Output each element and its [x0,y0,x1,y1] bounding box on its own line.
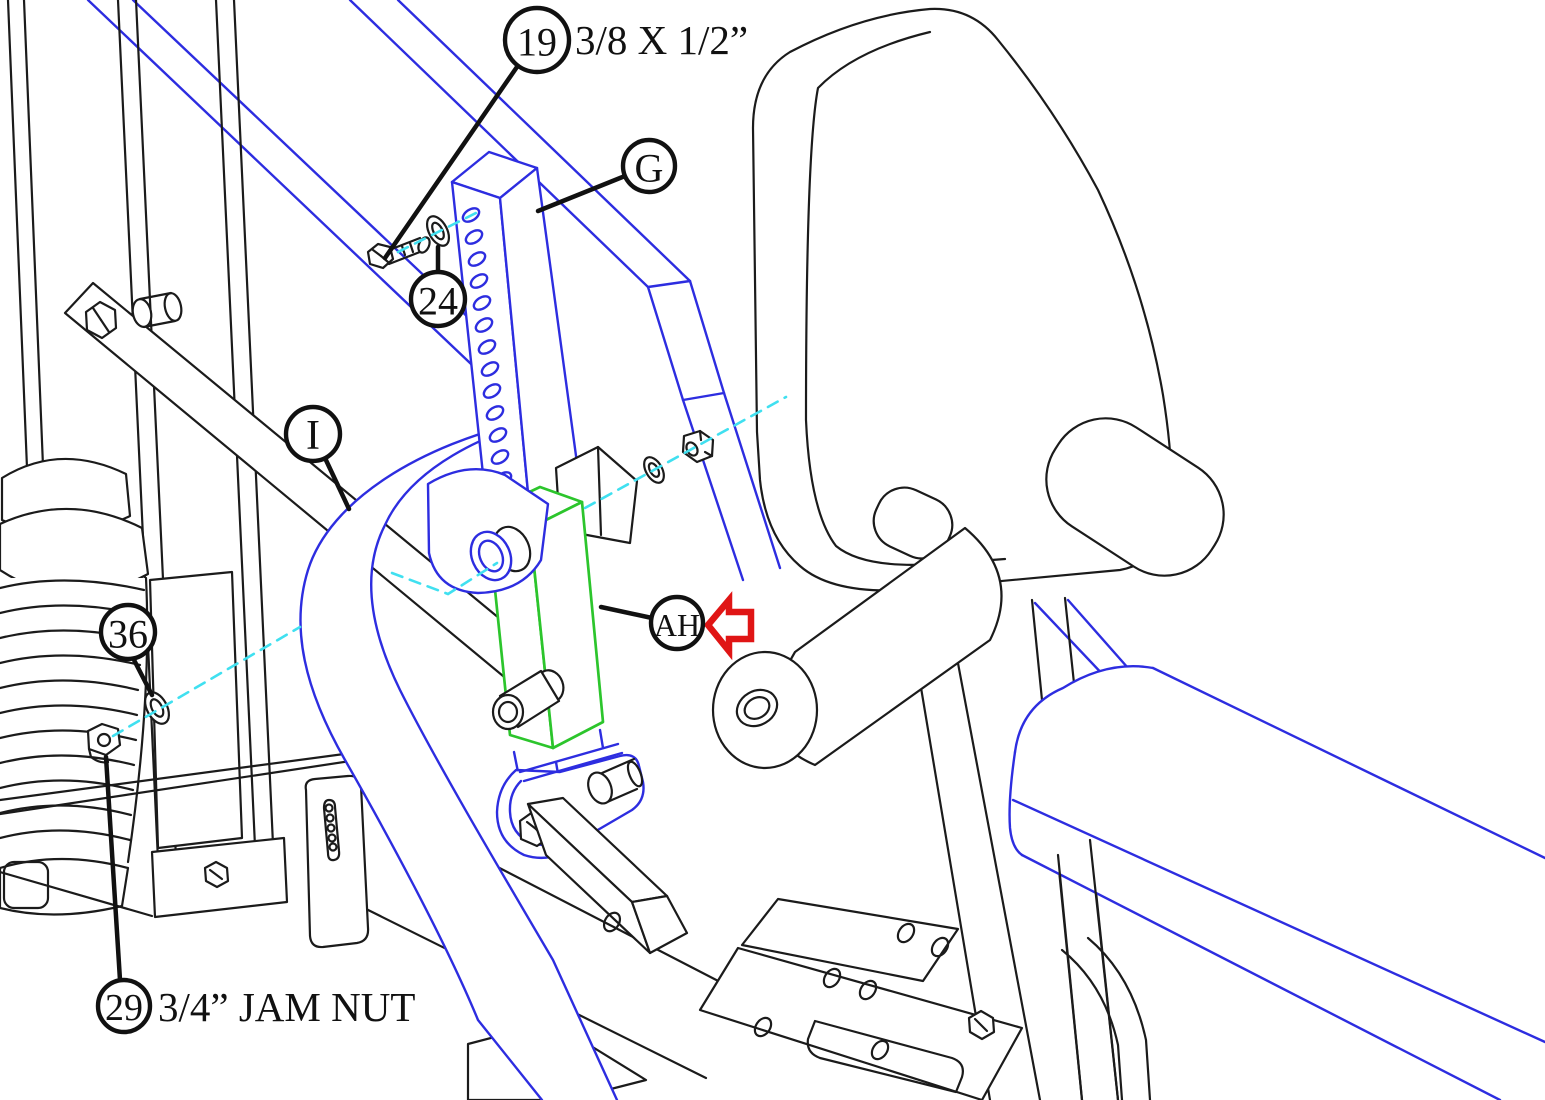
diagram-canvas: 19 3/8 X 1/2” 24 G I 36 29 3/4” JAM NUT … [0,0,1545,1100]
stack-base [0,859,128,915]
callout-24-label: 24 [418,279,458,324]
annotation-29-text: 3/4” JAM NUT [158,984,415,1030]
annotation-19-text: 3/8 X 1/2” [575,17,748,63]
front-roller-face [713,652,817,768]
assembly-diagram: 19 3/8 X 1/2” 24 G I 36 29 3/4” JAM NUT … [0,0,1545,1100]
red-arrow-icon [708,600,751,651]
callout-29-label: 29 [105,987,143,1029]
slotted-bracket [306,776,368,947]
callout-AH-label: AH [654,607,700,643]
callout-19-label: 19 [517,20,557,65]
callout-G-label: G [635,146,664,191]
nut-right [683,431,713,462]
callout-I-label: I [306,413,320,459]
leader-AH [601,607,652,618]
seat-pad [1010,666,1545,1100]
callout-36-label: 36 [108,612,148,657]
